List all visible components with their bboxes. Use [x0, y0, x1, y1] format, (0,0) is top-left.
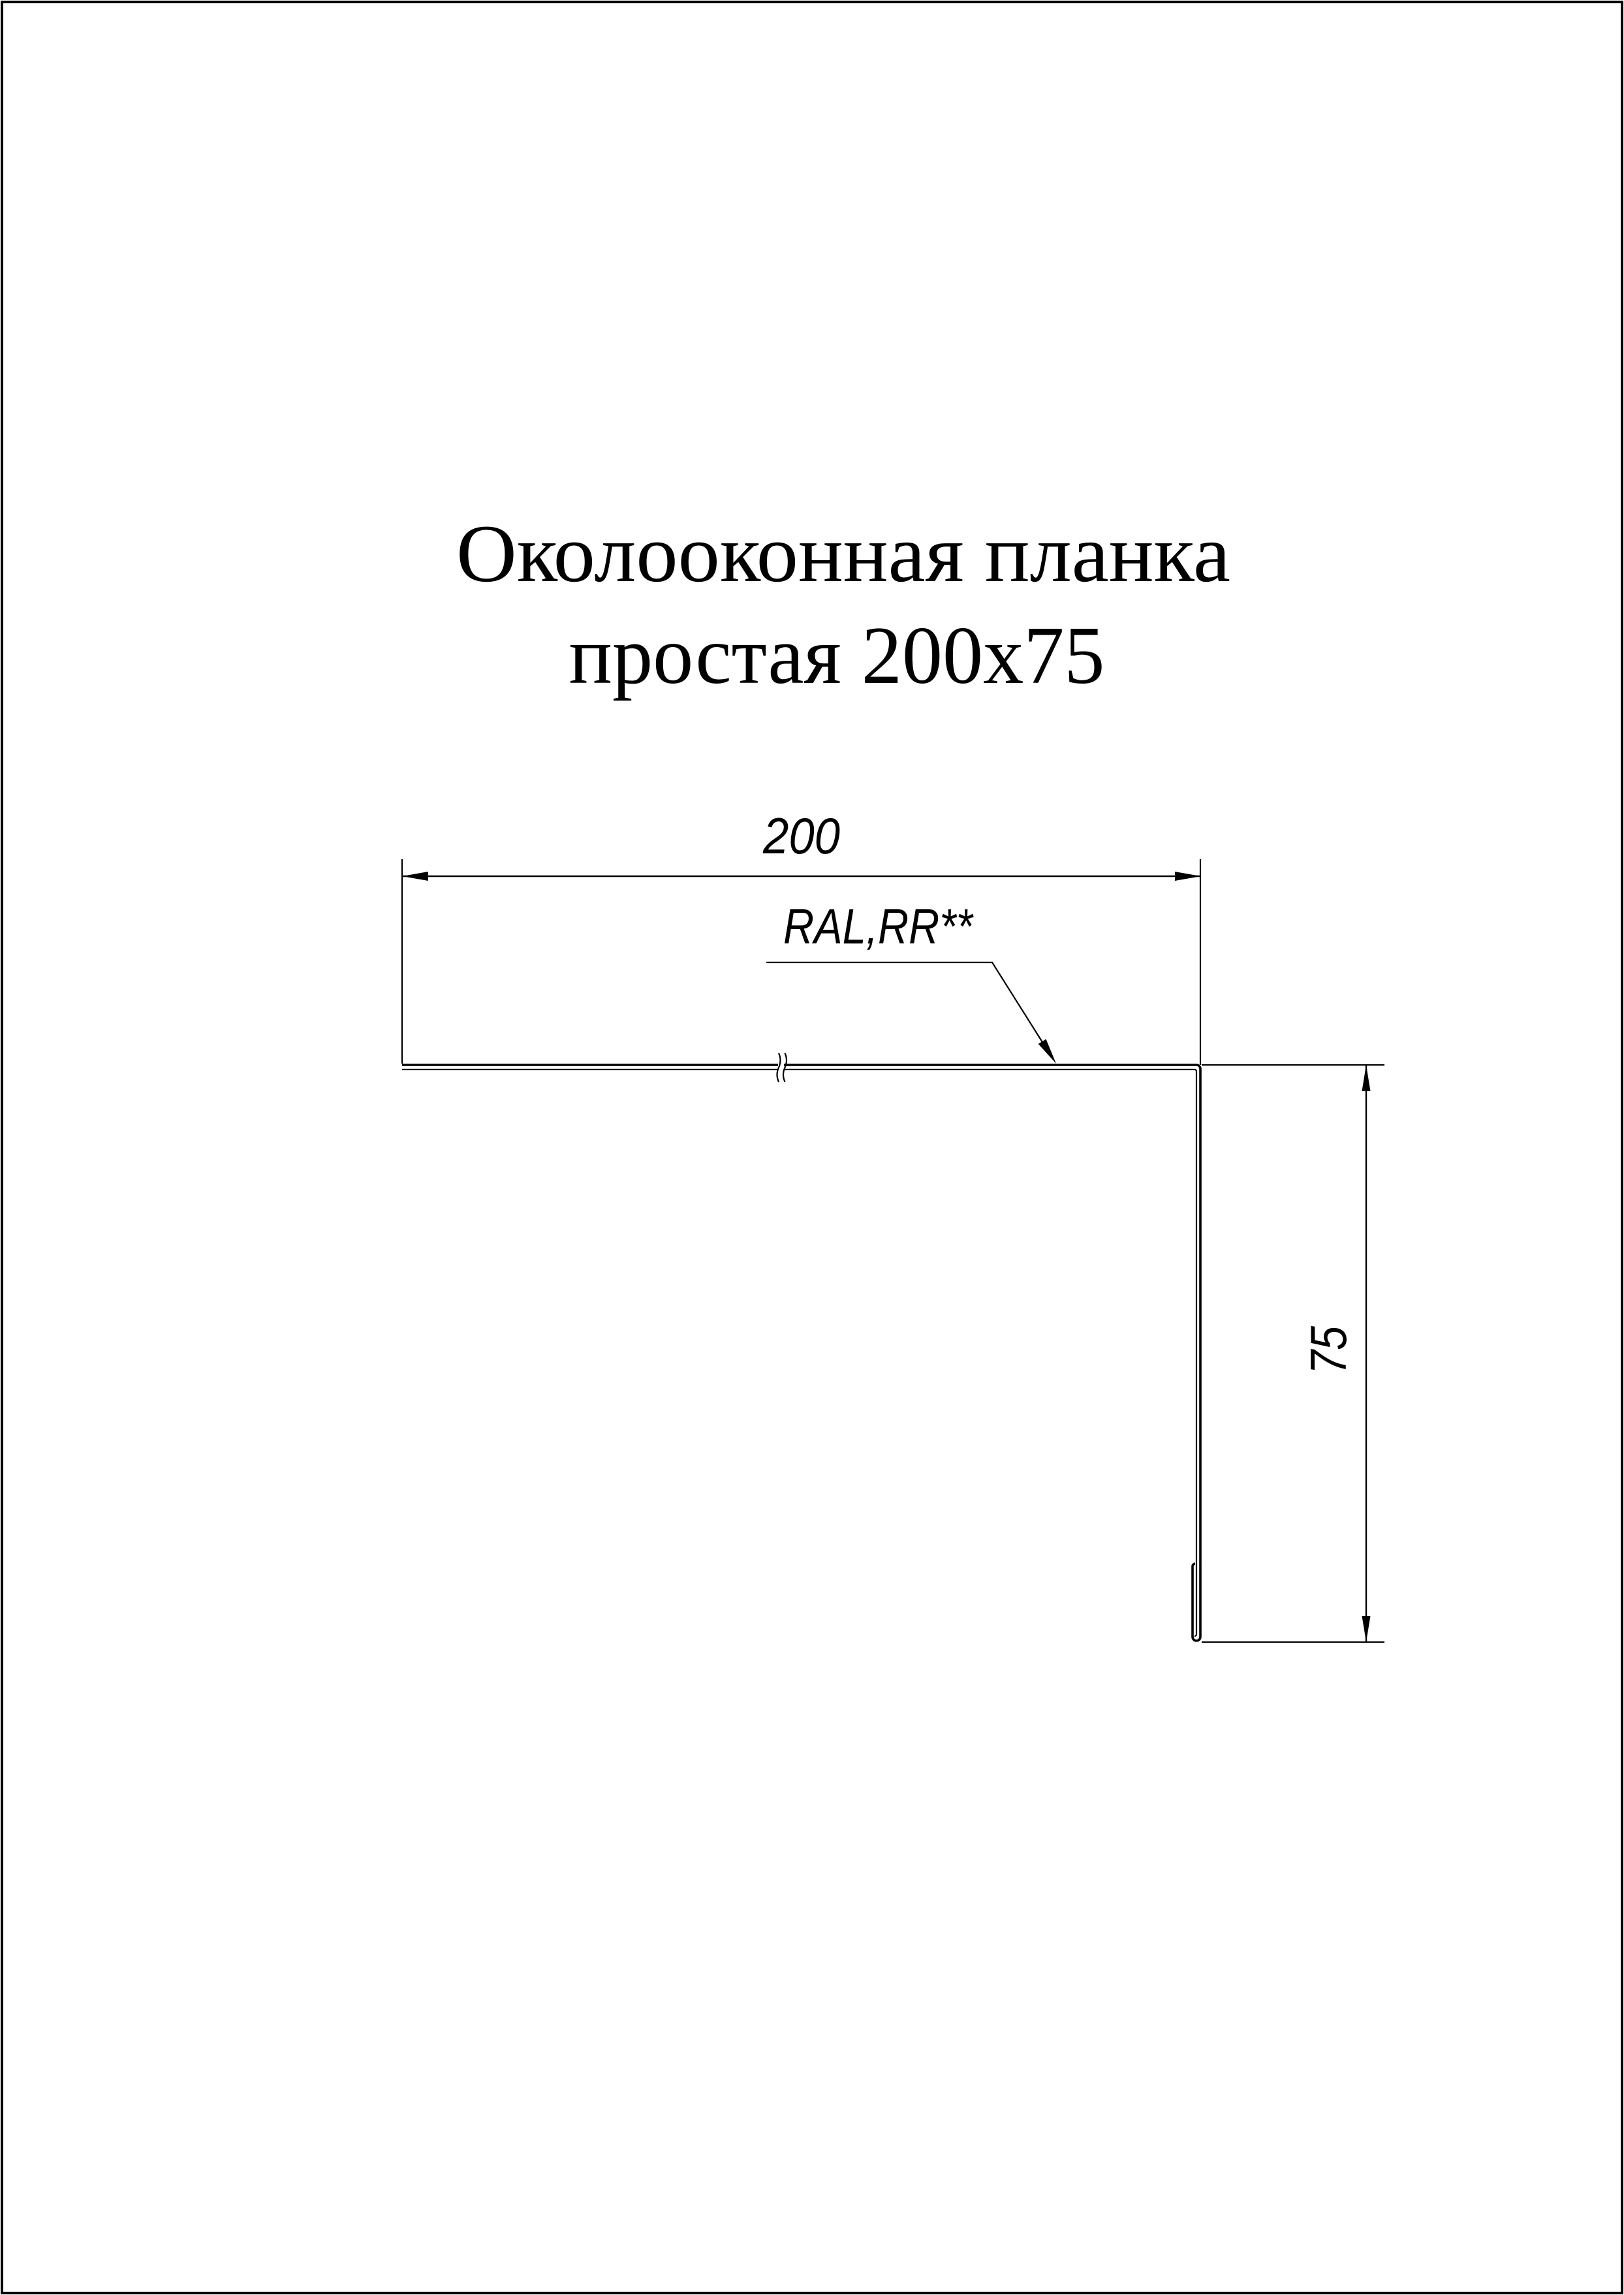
coating-callout: RAL,RR** [766, 899, 1056, 1064]
drawing-title-line2: простая 200х75 [569, 610, 1105, 701]
coating-label: RAL,RR** [783, 899, 974, 955]
height-dimension-value: 75 [1300, 1325, 1357, 1374]
technical-drawing-page: Околооконная планка простая 200х75 200 R… [0, 0, 1624, 2295]
height-dimension: 75 [1202, 1065, 1384, 1642]
height-arrow-top-icon [1362, 1065, 1371, 1091]
height-arrow-bottom-icon [1362, 1616, 1371, 1642]
drawing-title-line1: Околооконная планка [456, 509, 1230, 599]
width-dimension-value: 200 [762, 807, 840, 864]
profile-section [402, 1053, 1200, 1641]
profile-outer-surface [402, 1065, 1200, 1641]
coating-leader-arrow-icon [1038, 1039, 1056, 1064]
coating-leader-line [766, 962, 1052, 1058]
page-border [2, 2, 1622, 2293]
profile-inner-surface [402, 1069, 1196, 1636]
width-arrow-right-icon [1175, 872, 1201, 881]
width-arrow-left-icon [402, 872, 428, 881]
